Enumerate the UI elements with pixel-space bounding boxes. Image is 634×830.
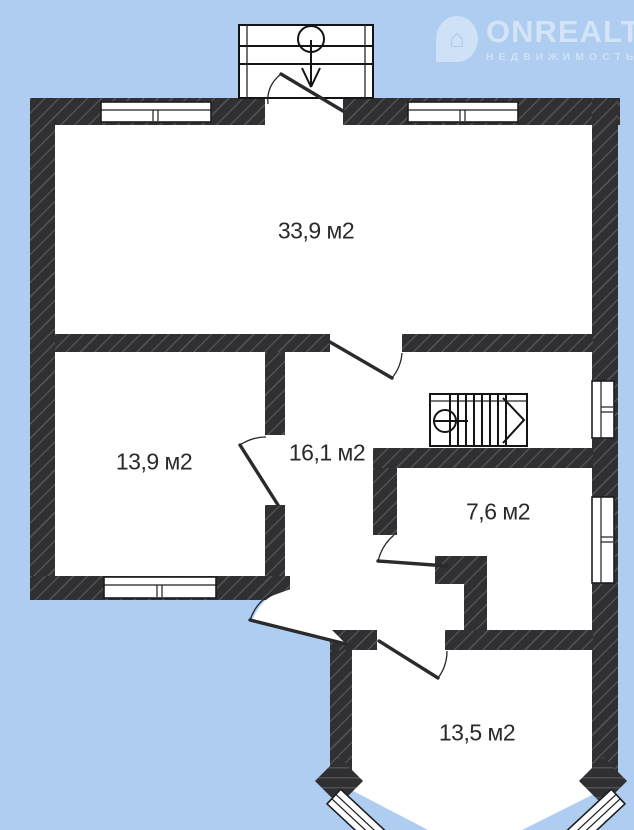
window-right-room76 [592,497,614,583]
window-bay-left [327,789,437,830]
room-label-bay: 13,5 м2 [439,720,515,747]
window-top-left [101,102,211,122]
door-room-left [240,437,278,505]
room-label-left: 13,9 м2 [116,449,192,476]
room-label-small: 7,6 м2 [466,499,530,526]
room-label-large: 33,9 м2 [278,218,354,245]
door-room-small [378,535,447,566]
window-bay-right [515,789,625,830]
window-right-landing [592,381,614,438]
door-room-bay [379,641,447,678]
floorplan-canvas: ⌂ ONREALT НЕДВИЖИМОСТЬ [0,0,634,830]
staircase-icon [430,394,527,446]
window-top-right [408,102,518,122]
door-exterior-rear [250,589,346,644]
plan-linework [0,0,634,830]
window-bottom-left [104,577,216,598]
door-room-large-to-hall [330,342,402,378]
room-label-hall: 16,1 м2 [289,440,365,467]
